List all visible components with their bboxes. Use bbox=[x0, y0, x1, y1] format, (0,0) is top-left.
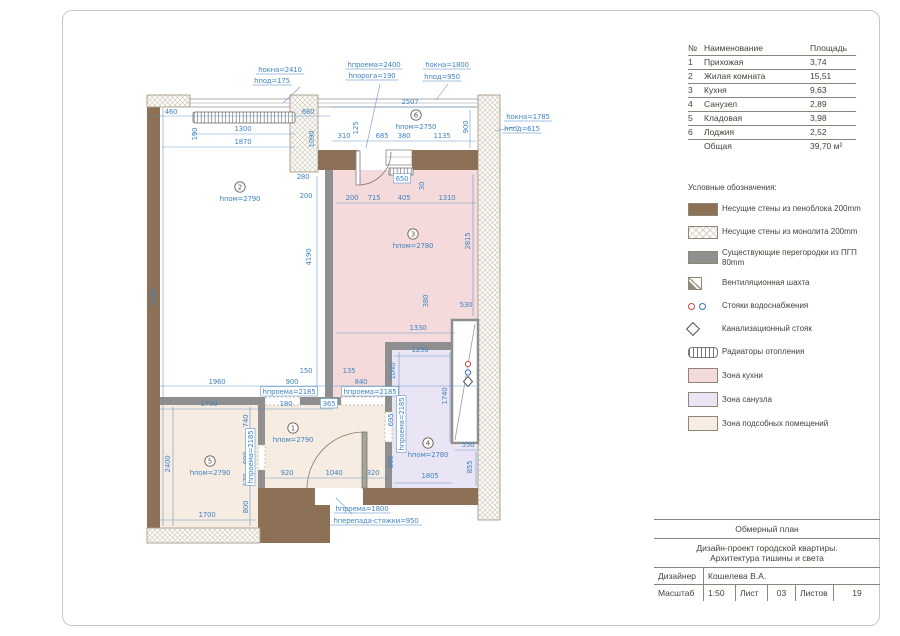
area-table-rows: 1Прихожая3,742Жилая комната15,513Кухня9,… bbox=[688, 56, 856, 140]
dim-label: 380 bbox=[422, 295, 430, 308]
legend-label: Несущие стены из пеноблока 200mm bbox=[722, 204, 880, 214]
room-height-label: hпом=2780 bbox=[393, 242, 433, 250]
dim-label: 1700 bbox=[198, 511, 215, 519]
col-area: Площадь bbox=[810, 44, 856, 53]
dim-label: 460 bbox=[165, 108, 178, 116]
wall-monolith-swatch bbox=[688, 226, 718, 239]
dim-label: hокна=1785 bbox=[506, 113, 550, 121]
kitchen-zone-swatch bbox=[688, 368, 718, 383]
room-height-label: hпом=2750 bbox=[396, 123, 436, 131]
sheet-label: Лист bbox=[736, 585, 768, 601]
dim-label: hпод=175 bbox=[254, 77, 290, 85]
scale-row: Масштаб 1:50 Лист 03 Листов 19 bbox=[654, 584, 880, 601]
sewer-riser-icon bbox=[688, 323, 718, 336]
dim-label: hпод=615 bbox=[504, 125, 540, 133]
total-value: 39,70 м² bbox=[810, 142, 856, 151]
room-number: 6 bbox=[414, 111, 419, 119]
dim-label: 5280 bbox=[150, 288, 158, 305]
designer-row: Дизайнер Кошелева В.А. bbox=[654, 567, 880, 584]
legend: Условные обозначения: Несущие стены из п… bbox=[688, 183, 880, 440]
dim-label: 680 bbox=[302, 108, 315, 116]
area-row: 3Кухня9,63 bbox=[688, 84, 856, 98]
dim-label: 200 bbox=[346, 194, 359, 202]
legend-label: Вентиляционная шахта bbox=[722, 278, 880, 288]
legend-label: Зона кухни bbox=[722, 371, 880, 381]
dim-label: 1870 bbox=[234, 138, 251, 146]
closet-door-opening bbox=[258, 445, 265, 470]
legend-item: Существующие перегородки из ПГП 80mm bbox=[688, 248, 880, 267]
dim-label: 685 bbox=[376, 132, 389, 140]
bottom-monolith-wall bbox=[147, 528, 260, 543]
area-row: 4Санузел2,89 bbox=[688, 98, 856, 112]
dim-label: 855 bbox=[466, 461, 474, 474]
right-monolith-wall bbox=[478, 95, 500, 520]
legend-label: Существующие перегородки из ПГП 80mm bbox=[722, 248, 880, 267]
dim-label: 740 bbox=[242, 415, 250, 428]
dim-label: hпроема=2185 bbox=[247, 431, 255, 484]
room-number: 4 bbox=[426, 439, 431, 447]
entry-door-leaf bbox=[362, 432, 367, 488]
room-number: 2 bbox=[238, 183, 242, 191]
dim-label: 1330 bbox=[409, 324, 426, 332]
dim-label: 1805 bbox=[421, 472, 438, 480]
dim-label: 135 bbox=[343, 367, 356, 375]
dim-label: 530 bbox=[460, 301, 473, 309]
legend-item: Вентиляционная шахта bbox=[688, 276, 880, 290]
dim-label: hпорога=190 bbox=[348, 72, 395, 80]
hot-water-riser bbox=[465, 361, 470, 366]
dim-label: 150 bbox=[300, 367, 313, 375]
loggia-wall-left bbox=[318, 150, 358, 170]
dim-label: 190 bbox=[191, 128, 199, 141]
legend-item: Стояки водоснабжения bbox=[688, 299, 880, 313]
legend-item: Несущие стены из монолита 200mm bbox=[688, 225, 880, 239]
area-total-row: Общая 39,70 м² bbox=[688, 140, 856, 153]
dim-label: 30 bbox=[418, 182, 426, 191]
dim-label: 1250 bbox=[411, 346, 428, 354]
balcony-window bbox=[386, 150, 412, 165]
dim-label: 4190 bbox=[305, 248, 313, 265]
wall-foamblock-swatch bbox=[688, 203, 718, 216]
dim-label: 920 bbox=[281, 469, 294, 477]
area-row: 2Жилая комната15,51 bbox=[688, 70, 856, 84]
dim-label: hокна=2410 bbox=[258, 66, 302, 74]
dim-label: 715 bbox=[368, 194, 381, 202]
dim-label: 1040 bbox=[325, 469, 342, 477]
room-number: 1 bbox=[291, 424, 295, 432]
dim-label: 405 bbox=[398, 194, 411, 202]
dim-label: 1960 bbox=[208, 378, 225, 386]
col-name: Наименование bbox=[704, 44, 810, 53]
area-row: 6Лоджия2,52 bbox=[688, 126, 856, 140]
dim-label: 320 bbox=[367, 469, 380, 477]
designer-label: Дизайнер bbox=[654, 568, 704, 584]
room-height-label: hпом=2790 bbox=[220, 195, 260, 203]
legend-item: Канализационный стояк bbox=[688, 322, 880, 336]
dim-label: 800 bbox=[242, 501, 250, 514]
sheets-label: Листов bbox=[796, 585, 834, 601]
scale-label: Масштаб bbox=[654, 585, 704, 601]
dim-label: hпроема=2185 bbox=[263, 388, 316, 396]
kitchen-partition bbox=[325, 170, 333, 398]
dim-label: hпроема=2400 bbox=[348, 61, 401, 69]
legend-item: Зона санузла bbox=[688, 392, 880, 407]
dim-label: 365 bbox=[323, 400, 336, 408]
dim-label: 840 bbox=[355, 378, 368, 386]
dim-label: 900 bbox=[286, 378, 299, 386]
dim-label: 380 bbox=[398, 132, 411, 140]
designer-name: Кошелева В.А. bbox=[704, 568, 880, 584]
title-block: Обмерный план Дизайн-проект городской кв… bbox=[654, 519, 880, 601]
dim-label: hпод=950 bbox=[424, 73, 460, 81]
legend-label: Стояки водоснабжения bbox=[722, 301, 880, 311]
plan-title: Обмерный план bbox=[654, 520, 880, 538]
dim-label: 2815 bbox=[464, 232, 472, 249]
dim-label: 900 bbox=[462, 121, 470, 134]
dim-label: 2400 bbox=[164, 455, 172, 472]
room-height-label: hпом=2790 bbox=[273, 436, 313, 444]
water-risers-icon bbox=[688, 300, 718, 313]
vent-shaft-icon bbox=[688, 277, 702, 290]
dim-label: 310 bbox=[338, 132, 351, 140]
legend-item: Несущие стены из пеноблока 200mm bbox=[688, 202, 880, 216]
radiator-icon bbox=[688, 347, 718, 358]
drawing-sheet: hокна=2410hпод=175hпроема=2400hпорога=19… bbox=[0, 0, 900, 636]
hall-bottom-wall-right bbox=[363, 488, 478, 505]
area-row: 5Кладовая3,98 bbox=[688, 112, 856, 126]
kitchen-hall-opening bbox=[341, 397, 388, 405]
dim-label: 1310 bbox=[438, 194, 455, 202]
dim-label: 2507 bbox=[401, 98, 418, 106]
legend-items: Несущие стены из пеноблока 200mmНесущие … bbox=[688, 202, 880, 431]
utility-zone-swatch bbox=[688, 416, 718, 431]
dim-label: hпроема=2185 bbox=[344, 388, 397, 396]
dim-label: hпроема=2185 bbox=[398, 398, 406, 451]
loggia-wall-right bbox=[412, 150, 478, 170]
dim-label: 125 bbox=[352, 122, 360, 135]
dim-label: 1090 bbox=[308, 130, 316, 147]
legend-item: Зона кухни bbox=[688, 368, 880, 383]
dim-label: 180 bbox=[280, 400, 293, 408]
bath-zone-swatch bbox=[688, 392, 718, 407]
total-label: Общая bbox=[704, 142, 810, 151]
legend-title: Условные обозначения: bbox=[688, 183, 880, 192]
balcony-door-leaf bbox=[356, 151, 360, 185]
legend-label: Зона подсобных помещений bbox=[722, 419, 880, 429]
scale-value: 1:50 bbox=[704, 585, 736, 601]
floor-plan: hокна=2410hпод=175hпроема=2400hпорога=19… bbox=[140, 55, 560, 560]
area-table: № Наименование Площадь 1Прихожая3,742Жил… bbox=[688, 42, 856, 153]
dim-label: 280 bbox=[297, 173, 310, 181]
legend-label: Несущие стены из монолита 200mm bbox=[722, 227, 880, 237]
legend-item: Зона подсобных помещений bbox=[688, 416, 880, 431]
legend-label: Зона санузла bbox=[722, 395, 880, 405]
legend-label: Радиаторы отопления bbox=[722, 347, 880, 357]
partition-swatch bbox=[688, 251, 718, 264]
col-number: № bbox=[688, 44, 704, 53]
dim-label: 695 bbox=[387, 414, 395, 427]
dim-label: 200 bbox=[300, 192, 313, 200]
topleft-monolith-wall bbox=[147, 95, 190, 107]
dim-label: 1740 bbox=[441, 387, 449, 404]
dim-label: hперепада-стяжки=950 bbox=[333, 517, 418, 525]
sheets-total: 19 bbox=[834, 585, 880, 601]
dim-label: 1700 bbox=[200, 400, 217, 408]
living-radiator bbox=[193, 112, 295, 123]
dim-label: hпроема=1800 bbox=[336, 505, 389, 513]
dim-label: 1300 bbox=[234, 125, 251, 133]
legend-label: Канализационный стояк bbox=[722, 324, 880, 334]
bottom-brown-block bbox=[258, 505, 330, 543]
area-row: 1Прихожая3,74 bbox=[688, 56, 856, 70]
legend-item: Радиаторы отопления bbox=[688, 345, 880, 359]
dim-label: 860 bbox=[387, 456, 395, 469]
sheet-number: 03 bbox=[768, 585, 796, 601]
room-number: 5 bbox=[208, 457, 212, 465]
room-height-label: hпом=2780 bbox=[408, 451, 448, 459]
cold-water-riser bbox=[465, 370, 470, 375]
left-wall bbox=[147, 106, 160, 528]
area-table-header: № Наименование Площадь bbox=[688, 42, 856, 56]
dim-label: 1135 bbox=[433, 132, 450, 140]
project-name: Дизайн-проект городской квартиры. Архите… bbox=[654, 538, 880, 567]
room-number: 3 bbox=[411, 230, 415, 238]
dim-label: 550 bbox=[462, 441, 475, 449]
dim-label: hокна=1800 bbox=[425, 61, 469, 69]
hall-bottom-wall-left bbox=[258, 488, 315, 505]
room-height-label: hпом=2790 bbox=[190, 469, 230, 477]
dim-label: 1040 bbox=[389, 362, 397, 379]
dim-label: 650 bbox=[396, 175, 409, 183]
